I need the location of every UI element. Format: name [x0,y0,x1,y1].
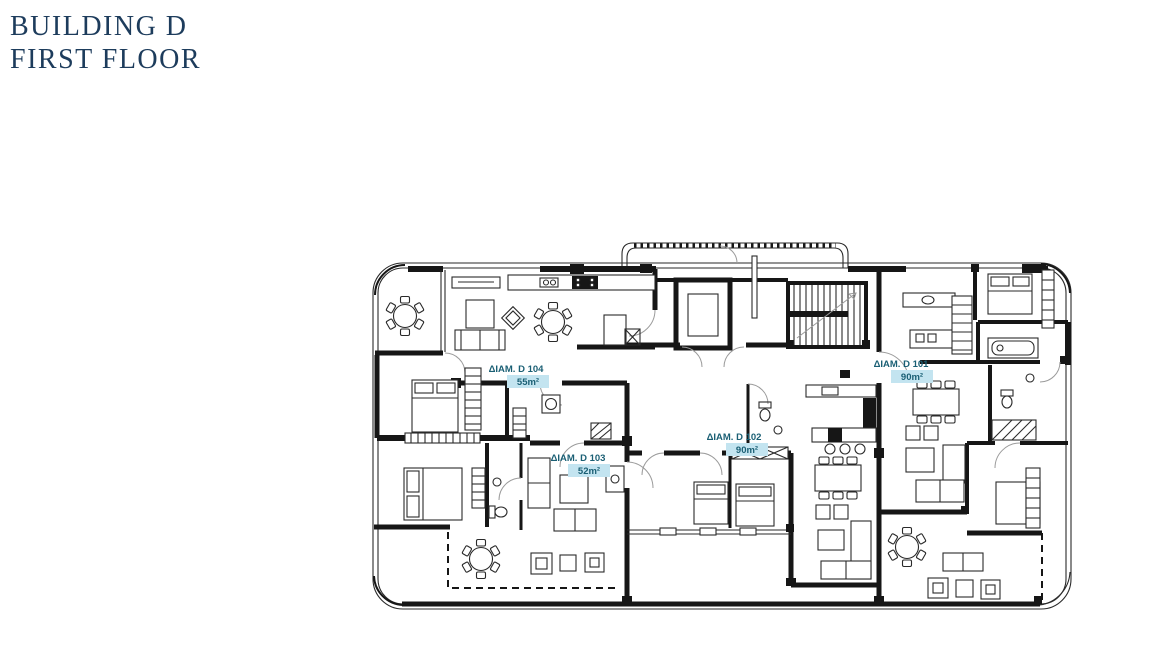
shower [992,420,1036,440]
apartment-name: ΔΙΑΜ. D 101 [874,359,930,370]
dining-table [913,381,959,423]
kitchen-counter [508,275,655,290]
shower [591,423,611,439]
floor-plan: ΔΙΑΜ. D 104 55m² ΔΙΑΜ. D 103 52m² ΔΙΑΜ. … [0,0,1172,648]
terrace-planters [531,553,1000,599]
apartment-area: 55m² [517,377,539,388]
rug-diamond [502,307,525,330]
round-table [888,528,926,567]
stool [816,505,830,519]
coffee-table [818,530,844,550]
screenshot-root: BUILDING D FIRST FLOOR [0,0,1172,648]
bed [404,468,462,520]
coffee-table [466,300,494,328]
bed [736,484,774,526]
bed [694,482,728,524]
apartment-label-d103: ΔΙΑΜ. D 103 52m² [551,453,610,477]
apartment-name: ΔΙΑΜ. D 102 [707,432,762,443]
terrace-sofa [943,553,983,571]
wardrobe [472,468,485,508]
tall-cabinet [952,296,972,354]
bed [988,274,1032,314]
apartment-area: 90m² [901,372,923,383]
wardrobe [1042,270,1054,328]
sofa [554,509,596,531]
staircase [788,283,866,347]
stool [924,426,938,440]
kitchen-counter [806,370,876,454]
apartment-name: ΔΙΑΜ. D 103 [551,453,606,464]
sofa [455,330,505,350]
apartment-label-d102: ΔΙΑΜ. D 102 90m² [707,432,768,456]
coffee-table [906,448,934,472]
bed [412,380,458,432]
washing-machine [542,395,560,413]
stool [834,505,848,519]
wardrobe [1026,468,1040,528]
apartment-label-d101: ΔΙΑΜ. D 101 90m² [874,359,933,383]
tv-unit [452,277,500,288]
wardrobe [465,368,481,430]
toilet [759,402,771,421]
round-table [462,540,500,579]
sofa [528,458,550,508]
washbasin [1026,374,1034,382]
bathtub [988,338,1038,358]
coffee-table [560,475,588,503]
washbasin [774,426,782,434]
apartment-name: ΔΙΑΜ. D 104 [489,364,545,375]
washbasin [493,478,501,486]
wardrobe [513,408,526,438]
apartment-area: 52m² [578,466,600,477]
stool [906,426,920,440]
dining-table [815,457,861,499]
round-table [534,303,572,342]
kitchen-counter [903,293,955,348]
apartment-area: 90m² [736,445,758,456]
round-table [386,297,424,336]
corner-sofa [916,445,965,502]
elevator [676,280,730,348]
toilet [1001,390,1013,408]
toilet [489,506,507,518]
